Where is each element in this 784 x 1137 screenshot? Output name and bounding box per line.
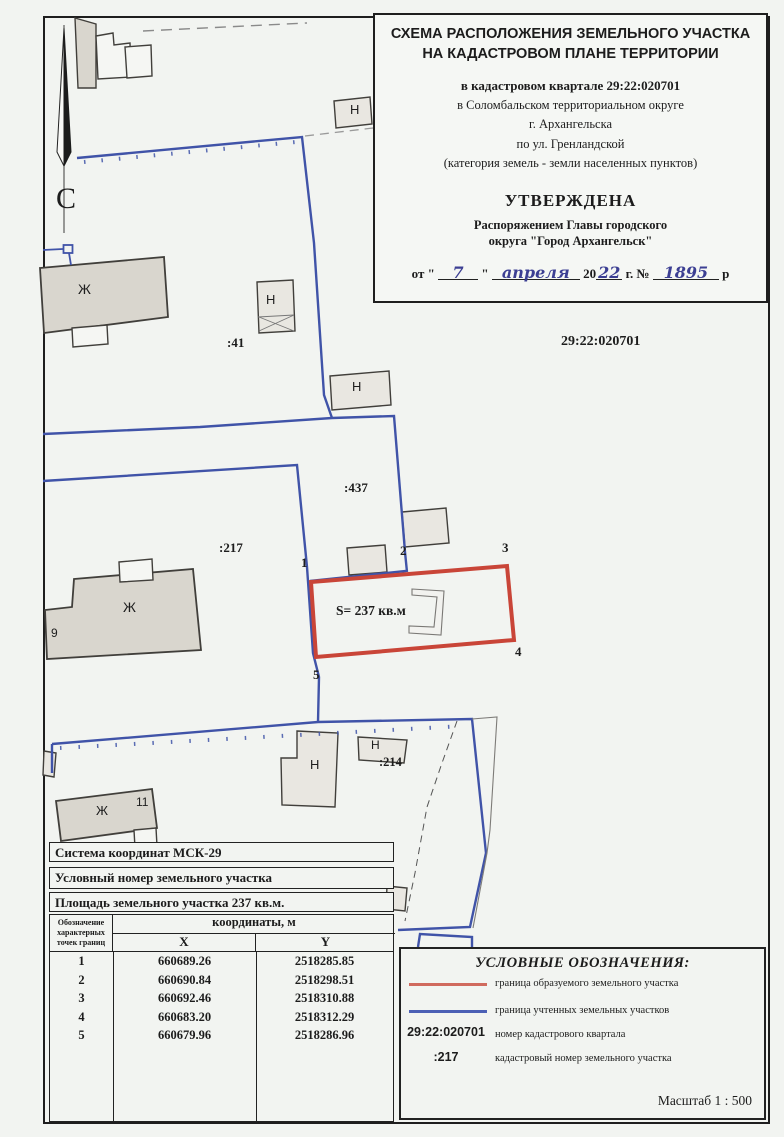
table-row-coordinate-system: Система координат МСК-29 <box>49 842 394 862</box>
point-y: 2518312.29 <box>256 1008 393 1027</box>
legend-box: УСЛОВНЫЕ ОБОЗНАЧЕНИЯ: граница образуемог… <box>399 947 766 1120</box>
scanned-cadastral-scheme: СЖН:41НН29:22:020701:437:217Ж912345S= 23… <box>0 0 784 1137</box>
building-above-plot <box>347 545 387 575</box>
building-topleft-1 <box>75 18 96 88</box>
legend-red-line-sample <box>409 983 487 986</box>
point-x: 660689.26 <box>113 952 256 971</box>
date-prefix: от " <box>412 266 435 281</box>
building-n-mid-shape <box>257 280 295 333</box>
coordinates-table: Обозначение характерных точек границ коо… <box>49 914 394 1122</box>
table-header-points-col: Обозначение характерных точек границ <box>50 915 113 951</box>
points-col-line3: точек границ <box>50 938 112 948</box>
points-col-line2: характерных <box>50 928 112 938</box>
date-day-handwritten: 7 <box>438 267 478 281</box>
service-square <box>64 245 73 253</box>
date-month-handwritten: апреля <box>492 267 580 281</box>
date-year-printed: 20 <box>583 266 596 281</box>
points-col-line1: Обозначение <box>50 918 112 928</box>
date-number-handwritten: 1895 <box>653 267 719 281</box>
table-header-coordinates: координаты, м <box>113 915 395 934</box>
location-line4: (категория земель - земли населенных пун… <box>375 155 766 171</box>
point-x: 660692.46 <box>113 989 256 1008</box>
point-x: 660690.84 <box>113 971 256 990</box>
legend-quarter-label: номер кадастрового квартала <box>495 1029 625 1040</box>
building-topleft-3 <box>125 45 152 78</box>
location-line1: в Соломбальском территориальном округе <box>375 97 766 113</box>
point-y: 2518286.96 <box>256 1026 393 1045</box>
table-point-row-5: 5660679.962518286.96 <box>50 1026 393 1045</box>
new-parcel-red-boundary <box>311 566 514 657</box>
table-header-y: Y <box>256 934 395 951</box>
legend-parcel-code: :217 <box>403 1050 489 1064</box>
date-suffix: р <box>722 266 729 281</box>
dashed-line-mid <box>305 128 373 136</box>
location-line3: по ул. Гренландской <box>375 136 766 152</box>
service-line-2 <box>69 253 71 265</box>
point-x: 660683.20 <box>113 1008 256 1027</box>
title-block: СХЕМА РАСПОЛОЖЕНИЯ ЗЕМЕЛЬНОГО УЧАСТКА НА… <box>373 13 768 303</box>
building-small-left <box>43 751 56 777</box>
north-arrow-left <box>57 28 64 166</box>
boundary-below-cut <box>418 934 472 947</box>
building-zh-top-shape <box>40 257 168 333</box>
approved-by-line1: Распоряжением Главы городского <box>375 217 766 233</box>
building-n-big-shape <box>281 731 338 807</box>
date-mid: г. № <box>626 266 650 281</box>
point-number: 5 <box>50 1026 113 1045</box>
point-number: 1 <box>50 952 113 971</box>
legend-quarter-code: 29:22:020701 <box>403 1025 489 1039</box>
building-n-top-shape <box>334 97 372 128</box>
point-number: 2 <box>50 971 113 990</box>
date-quote: " <box>481 266 488 281</box>
boundary-ticks-upper <box>84 142 296 162</box>
scale-label: Масштаб 1 : 500 <box>658 1093 752 1109</box>
table-row-conditional-number: Условный номер земельного участка <box>49 867 394 889</box>
building-n-right-shape <box>330 371 391 410</box>
building-inside-plot <box>409 589 444 635</box>
point-number: 3 <box>50 989 113 1008</box>
point-number: 4 <box>50 1008 113 1027</box>
table-point-row-3: 3660692.462518310.88 <box>50 989 393 1008</box>
north-arrow <box>57 25 71 233</box>
building-zh-top-annex <box>72 325 108 347</box>
north-arrow-right <box>64 28 71 166</box>
point-x: 660679.96 <box>113 1026 256 1045</box>
location-line2: г. Архангельска <box>375 116 766 132</box>
date-year-handwritten: 22 <box>596 267 622 281</box>
legend-blue-line-sample <box>409 1010 487 1013</box>
legend-title: УСЛОВНЫЕ ОБОЗНАЧЕНИЯ: <box>401 955 764 972</box>
approved-by-line2: округа "Город Архангельск" <box>375 233 766 249</box>
table-header-x: X <box>113 934 256 951</box>
building-n-214-shape <box>358 737 407 763</box>
legend-red-label: граница образуемого земельного участка <box>495 978 678 989</box>
dashed-boundary-bottom <box>405 721 457 921</box>
doc-title-line2: НА КАДАСТРОВОМ ПЛАНЕ ТЕРРИТОРИИ <box>375 45 766 65</box>
quarter-line: в кадастровом квартале 29:22:020701 <box>375 78 766 94</box>
approved-stamp: УТВЕРЖДЕНА <box>375 191 766 211</box>
doc-title-line1: СХЕМА РАСПОЛОЖЕНИЯ ЗЕМЕЛЬНОГО УЧАСТКА <box>375 25 766 45</box>
building-right-of-point2 <box>402 508 449 547</box>
legend-blue-label: граница учтенных земельных участков <box>495 1005 669 1016</box>
point-y: 2518285.85 <box>256 952 393 971</box>
point-y: 2518298.51 <box>256 971 393 990</box>
table-point-row-2: 2660690.842518298.51 <box>50 971 393 990</box>
legend-parcel-label: кадастровый номер земельного участка <box>495 1053 672 1064</box>
approval-date-line: от " 7 " апреля 2022 г. № 1895 р <box>375 266 766 282</box>
table-point-row-1: 1660689.262518285.85 <box>50 952 393 971</box>
table-row-area: Площадь земельного участка 237 кв.м. <box>49 892 394 912</box>
service-line <box>43 249 63 250</box>
dashed-line-top <box>143 23 307 31</box>
building-zh-217-annex <box>119 559 153 582</box>
point-y: 2518310.88 <box>256 989 393 1008</box>
table-point-row-4: 4660683.202518312.29 <box>50 1008 393 1027</box>
